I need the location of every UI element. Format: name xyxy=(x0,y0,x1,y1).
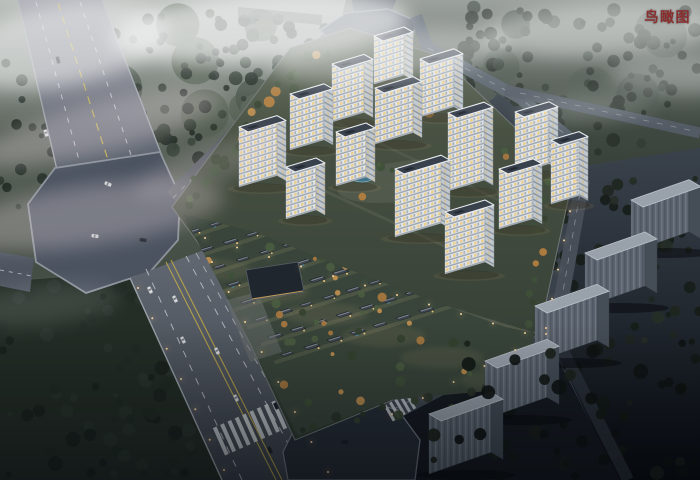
street-lamp xyxy=(460,313,462,315)
tree xyxy=(594,148,601,155)
courtyard-light xyxy=(271,252,273,254)
courtyard-light xyxy=(379,283,381,285)
tree xyxy=(377,162,382,167)
tree xyxy=(606,133,620,147)
tree xyxy=(195,133,203,141)
courtyard-light xyxy=(236,242,238,244)
street-lamp xyxy=(575,181,577,183)
tree xyxy=(189,130,195,136)
courtyard-light xyxy=(349,315,351,317)
tower-facade-side xyxy=(485,200,494,267)
tree xyxy=(272,299,281,308)
street-lamp xyxy=(364,285,366,287)
tree xyxy=(187,138,195,146)
tree xyxy=(533,260,539,266)
tree xyxy=(636,139,646,149)
street-lamp xyxy=(228,291,230,293)
ground-glow xyxy=(489,226,550,236)
ground-glow xyxy=(280,147,341,157)
tree xyxy=(629,177,637,185)
street-lamp xyxy=(268,256,270,258)
aerial-view-rendering xyxy=(0,0,700,480)
tower-facade-side xyxy=(579,132,588,201)
courtyard-light xyxy=(199,232,201,234)
street-lamp xyxy=(569,210,571,212)
street-lamp xyxy=(428,304,430,306)
tree xyxy=(358,193,366,201)
tree xyxy=(378,293,387,302)
tree xyxy=(684,281,696,293)
courtyard-light xyxy=(311,305,313,307)
tree xyxy=(125,292,136,303)
tree xyxy=(172,143,178,149)
street-lamp xyxy=(151,317,153,319)
courtyard-light xyxy=(323,280,325,282)
tree xyxy=(299,309,306,316)
tree xyxy=(335,290,341,296)
tree xyxy=(326,263,335,272)
ground-glow xyxy=(433,271,505,281)
tree xyxy=(612,179,624,191)
street-lamp xyxy=(396,294,398,296)
tree xyxy=(265,243,274,252)
street-lamp xyxy=(300,266,302,268)
tree xyxy=(539,248,547,256)
tree xyxy=(503,154,509,160)
tree xyxy=(313,257,317,261)
tree xyxy=(610,196,619,205)
tree xyxy=(276,311,283,318)
courtyard-light xyxy=(333,298,335,300)
tree xyxy=(600,195,611,206)
tree xyxy=(390,168,395,173)
road-west xyxy=(0,252,34,292)
street-lamp xyxy=(204,237,206,239)
street-lamp xyxy=(557,269,559,271)
tree xyxy=(531,277,537,283)
street-lamp xyxy=(236,247,238,249)
tree xyxy=(501,148,508,155)
tree xyxy=(530,299,536,305)
view-label: 鸟瞰图 xyxy=(645,7,692,27)
tree xyxy=(377,309,382,314)
courtyard-light xyxy=(432,311,434,313)
courtyard-light xyxy=(346,273,348,275)
courtyard-light xyxy=(257,235,259,237)
courtyard-light xyxy=(239,284,241,286)
tower-facade-side xyxy=(366,123,375,182)
tree xyxy=(648,296,654,302)
street-lamp xyxy=(332,275,334,277)
street-lamp xyxy=(563,239,565,241)
street-lamp xyxy=(551,298,553,300)
dark-bottom-overlay xyxy=(0,320,700,480)
tree xyxy=(358,291,365,298)
tree xyxy=(526,290,533,297)
tree xyxy=(360,310,365,315)
street-lamp xyxy=(137,287,139,289)
tree xyxy=(670,306,681,317)
tower-facade-side xyxy=(316,158,325,215)
tree xyxy=(693,176,698,181)
tree xyxy=(228,272,235,279)
tree xyxy=(2,183,12,193)
aerial-render-canvas: 鸟瞰图 xyxy=(0,0,700,480)
tower-facade-side xyxy=(533,159,542,224)
street-lamp xyxy=(211,261,213,263)
tree xyxy=(541,216,547,222)
